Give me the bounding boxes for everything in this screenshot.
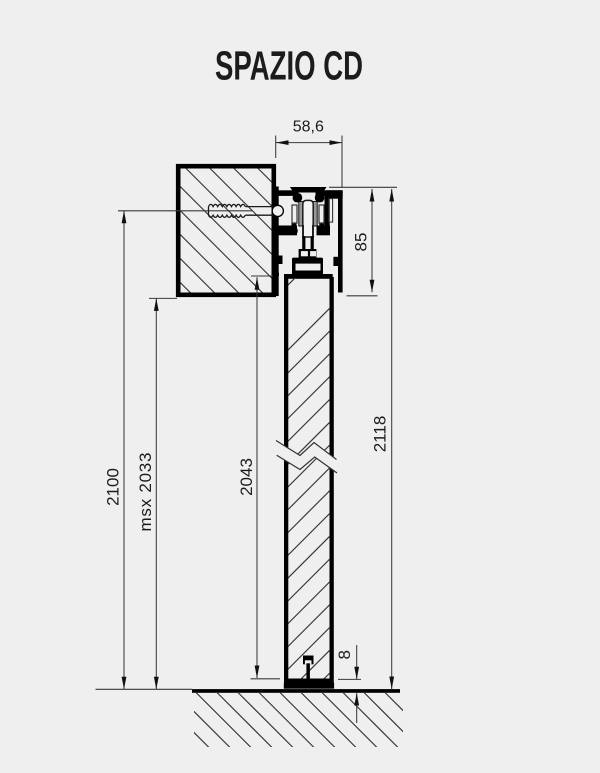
svg-text:85: 85 xyxy=(351,233,370,252)
svg-text:58,6: 58,6 xyxy=(293,119,324,136)
svg-text:2043: 2043 xyxy=(237,458,256,496)
svg-text:8: 8 xyxy=(335,650,354,659)
svg-text:2118: 2118 xyxy=(371,416,390,453)
svg-text:msx 2033: msx 2033 xyxy=(136,453,155,532)
svg-text:2100: 2100 xyxy=(103,468,122,506)
svg-text:SPAZIO CD: SPAZIO CD xyxy=(215,43,363,89)
